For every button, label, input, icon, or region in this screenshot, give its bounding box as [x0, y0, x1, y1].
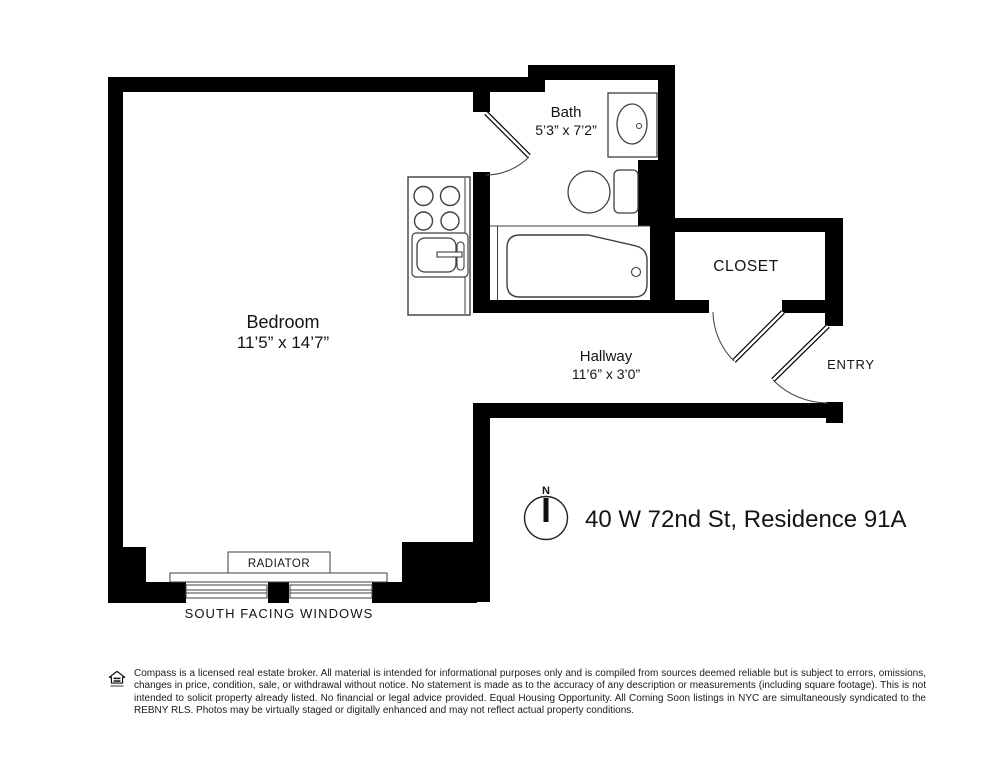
window-right — [290, 585, 372, 598]
entry-label: ENTRY — [827, 357, 875, 372]
room-labels: Bedroom 11’5” x 14’7” Bath 5’3” x 7’2” H… — [185, 104, 907, 621]
bedroom-label: Bedroom — [246, 312, 319, 332]
kitchen-unit — [408, 177, 470, 315]
sink-drain — [637, 124, 642, 129]
wall-segment — [108, 582, 186, 603]
toilet — [568, 170, 638, 213]
floorplan-page: N Bedroom 11’5” x 14’7” Bath 5’3” x 7’2”… — [0, 0, 1000, 772]
wall-segment — [473, 92, 490, 112]
wall-segment — [473, 403, 827, 418]
equal-housing-opportunity-icon — [108, 670, 126, 689]
footer: Compass is a licensed real estate broker… — [108, 668, 928, 717]
bathroom-sink — [608, 93, 657, 157]
wall-segment — [268, 582, 289, 603]
stove-burner — [441, 187, 460, 206]
bedroom-dims: 11’5” x 14’7” — [237, 333, 330, 352]
stove-burner — [441, 212, 459, 230]
door-swing-arc — [486, 157, 529, 175]
bath-label: Bath — [551, 104, 582, 121]
compass: N — [525, 485, 568, 540]
wall-segment — [528, 65, 675, 80]
closet-door — [713, 312, 783, 361]
hallway-label: Hallway — [580, 348, 633, 365]
door-swing-arc — [713, 312, 734, 361]
hallway-dims: 11’6” x 3’0” — [572, 366, 641, 382]
stove-burner — [414, 187, 433, 206]
stove-burner — [415, 212, 433, 230]
wall-segment — [473, 172, 490, 313]
window-left — [186, 585, 267, 598]
wall-segment — [638, 160, 675, 226]
south-facing-windows-label: SOUTH FACING WINDOWS — [185, 606, 374, 621]
bath-dims: 5’3” x 7’2” — [535, 122, 597, 138]
bath-door — [486, 113, 529, 175]
door-swing-arc — [773, 380, 828, 403]
wall-segment — [528, 65, 545, 92]
sink-bowl — [617, 104, 647, 144]
wall-segment — [108, 77, 545, 92]
bathtub — [490, 226, 650, 300]
tub — [507, 235, 647, 297]
wall-segment — [825, 218, 843, 326]
wall-segment — [473, 408, 490, 602]
entry-door — [773, 326, 828, 403]
wall-segment — [650, 226, 675, 313]
compass-north-label: N — [542, 485, 550, 497]
tub-drain — [632, 268, 641, 277]
kitchen-sink — [412, 233, 468, 277]
wall-segment — [826, 402, 843, 423]
window-sill — [170, 573, 387, 582]
closet-label: CLOSET — [713, 258, 779, 275]
wall-segment — [108, 77, 123, 602]
wall-segment — [658, 218, 842, 232]
toilet-bowl — [568, 171, 610, 213]
floorplan-drawing: N Bedroom 11’5” x 14’7” Bath 5’3” x 7’2”… — [0, 0, 1000, 772]
listing-address: 40 W 72nd St, Residence 91A — [585, 506, 907, 533]
radiator-label: RADIATOR — [248, 558, 310, 570]
disclaimer-text: Compass is a licensed real estate broker… — [134, 668, 926, 717]
toilet-tank — [614, 170, 638, 213]
faucet-spout — [437, 252, 462, 257]
